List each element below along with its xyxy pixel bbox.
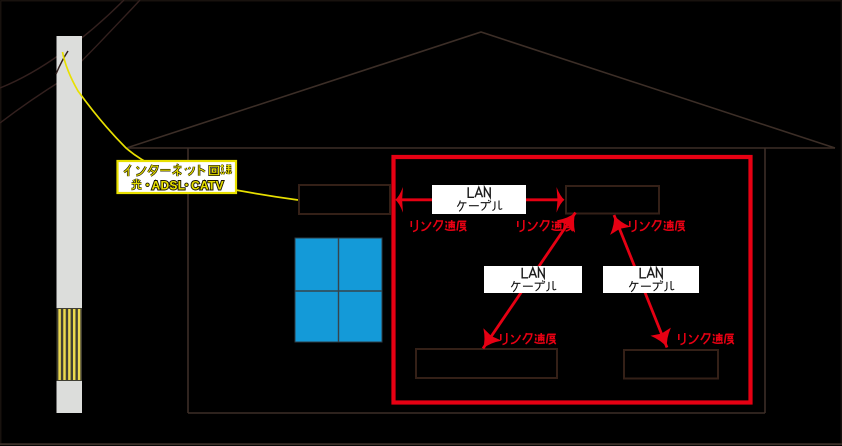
svg-text:CATV: CATV xyxy=(191,179,224,193)
svg-text:ADSL: ADSL xyxy=(152,179,186,193)
